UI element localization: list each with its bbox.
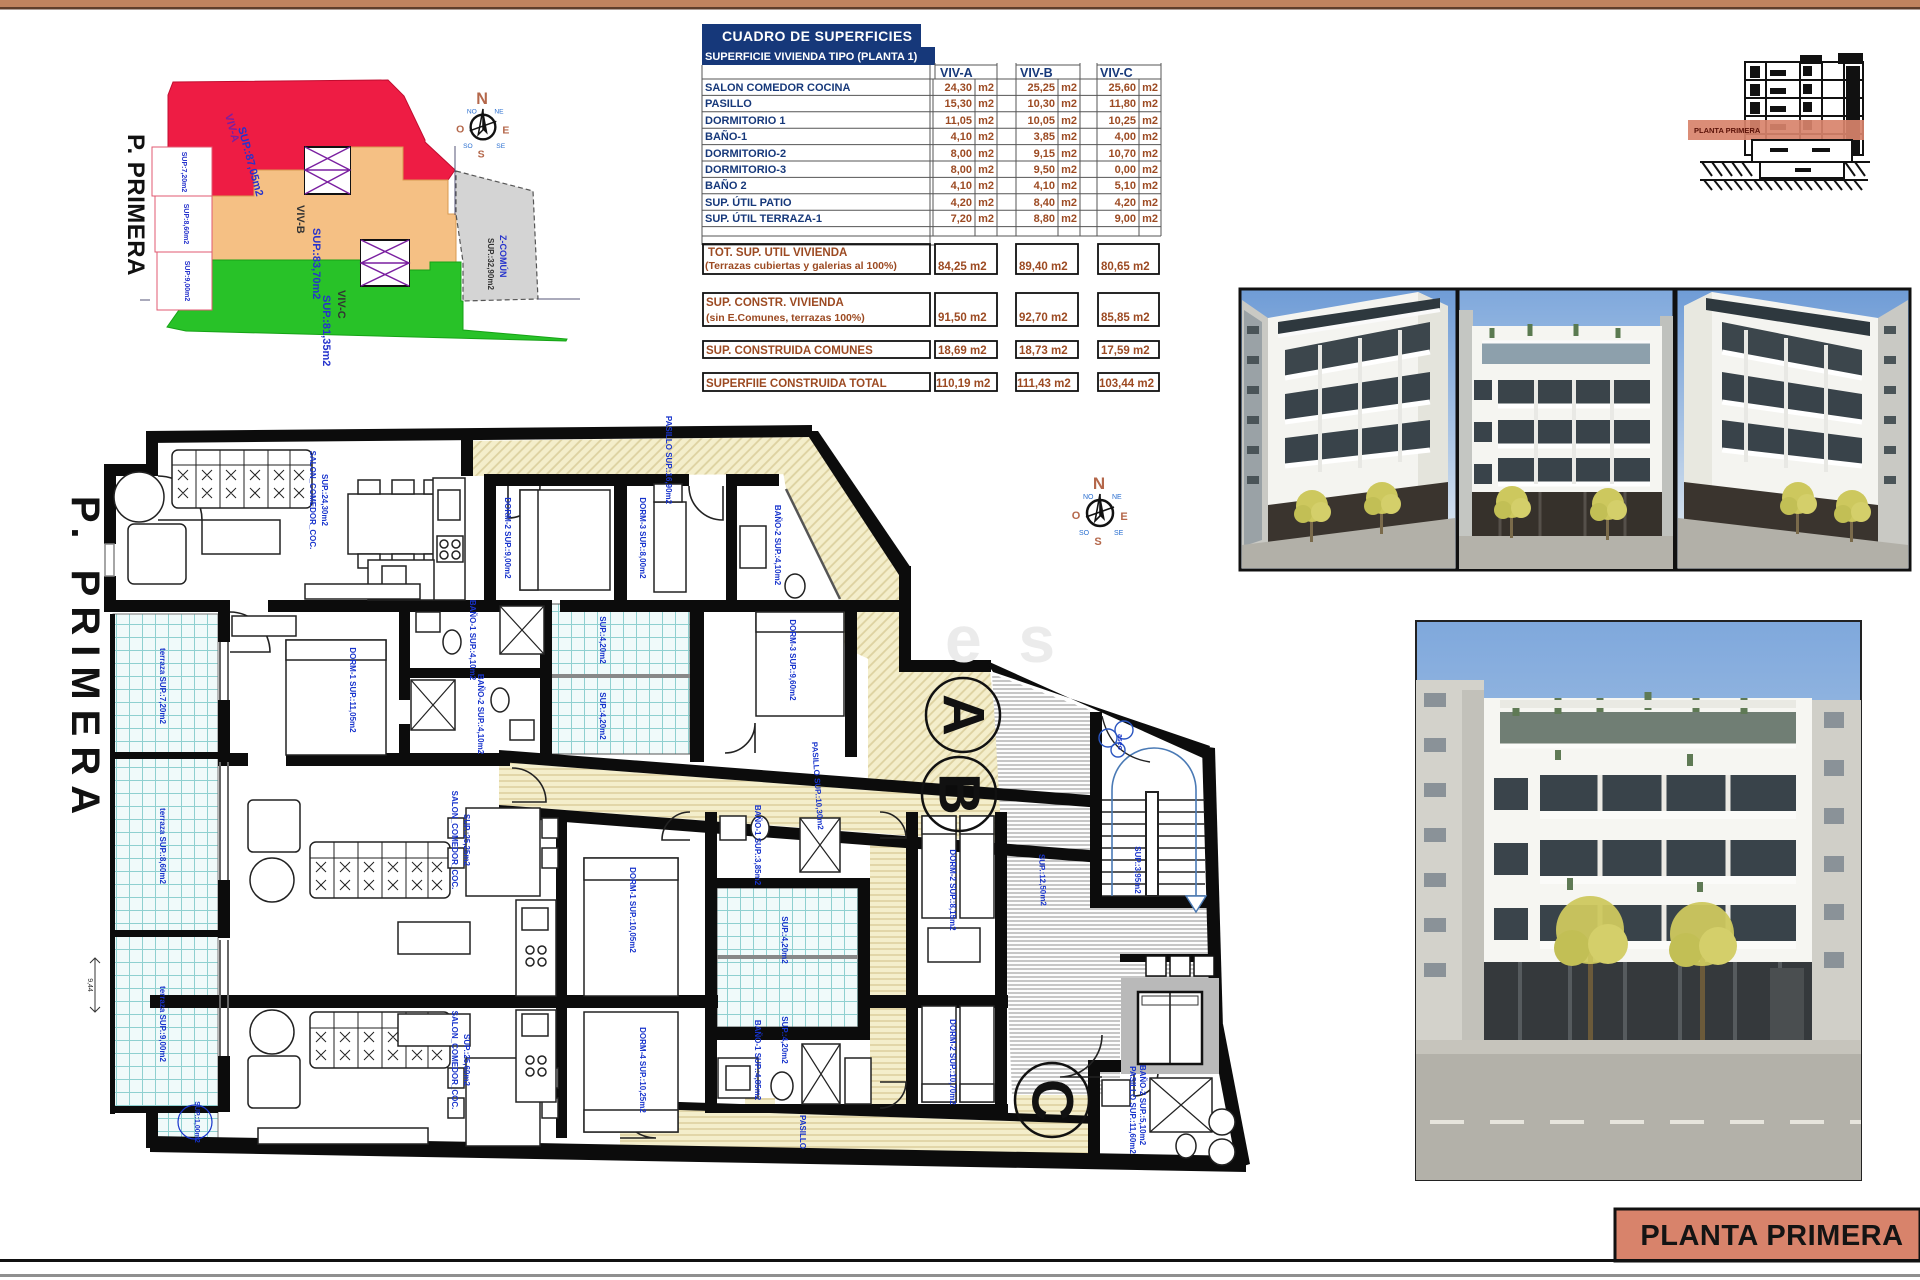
svg-text:4,20: 4,20: [951, 197, 972, 209]
svg-text:DORM-2 SUP.:8,15m2: DORM-2 SUP.:8,15m2: [948, 849, 957, 931]
svg-text:m2: m2: [1061, 213, 1077, 225]
svg-text:25,25: 25,25: [1027, 82, 1055, 94]
svg-text:m2: m2: [978, 148, 994, 160]
svg-text:CUADRO DE SUPERFICIES: CUADRO DE SUPERFICIES: [722, 28, 912, 44]
svg-text:A: A: [931, 694, 996, 736]
svg-text:PASILLO SUP.:11,60m2: PASILLO SUP.:11,60m2: [1128, 1066, 1137, 1154]
svg-text:DORM-2 SUP.:9,00m2: DORM-2 SUP.:9,00m2: [503, 497, 512, 579]
svg-text:7,20: 7,20: [951, 213, 972, 225]
svg-text:92,70 m2: 92,70 m2: [1019, 312, 1068, 324]
svg-text:m2: m2: [1061, 131, 1077, 143]
svg-text:SUP:8,60m2: SUP:8,60m2: [182, 204, 189, 245]
svg-text:BAÑO-1 SUP.:4,10m2: BAÑO-1 SUP.:4,10m2: [468, 600, 477, 681]
svg-text:SUP.:1,00m2: SUP.:1,00m2: [193, 1101, 200, 1143]
svg-text:4,10: 4,10: [951, 131, 972, 143]
svg-text:terraza SUP.:9,00m2: terraza SUP.:9,00m2: [158, 986, 167, 1062]
svg-text:SUP.:3,95m2: SUP.:3,95m2: [1133, 846, 1142, 894]
svg-text:m2: m2: [978, 213, 994, 225]
svg-text:P. PRIMERA: P. PRIMERA: [63, 496, 107, 824]
svg-text:PASILLO SUP.:16,90m2: PASILLO SUP.:16,90m2: [664, 416, 673, 505]
svg-text:8,00: 8,00: [951, 148, 972, 160]
svg-text:SUP.:4,20m2: SUP.:4,20m2: [780, 916, 789, 964]
svg-text:m2: m2: [1061, 148, 1077, 160]
svg-text:9,00: 9,00: [1115, 213, 1136, 225]
svg-text:SUP.:4,20m2: SUP.:4,20m2: [780, 1016, 789, 1064]
svg-text:8,80: 8,80: [1034, 213, 1055, 225]
svg-text:SUP.:4,20m2: SUP.:4,20m2: [598, 692, 607, 740]
svg-text:SUP:9,00m2: SUP:9,00m2: [183, 261, 190, 302]
svg-text:17,59 m2: 17,59 m2: [1101, 345, 1150, 357]
svg-text:8,00: 8,00: [951, 164, 972, 176]
svg-text:terraza SUP.:8,60m2: terraza SUP.:8,60m2: [158, 808, 167, 884]
svg-text:m2: m2: [978, 131, 994, 143]
svg-text:TOT. SUP. UTIL VIVIENDA: TOT. SUP. UTIL VIVIENDA: [708, 247, 847, 259]
svg-text:SUP:7,20m2: SUP:7,20m2: [180, 152, 187, 193]
svg-text:10,70: 10,70: [1108, 148, 1136, 160]
svg-text:DORM-4 SUP.:10,25m2: DORM-4 SUP.:10,25m2: [638, 1027, 647, 1113]
svg-text:SALON COMEDOR COCINA: SALON COMEDOR COCINA: [705, 82, 851, 94]
svg-text:PASILLO: PASILLO: [798, 1115, 807, 1149]
svg-text:DORMITORIO-2: DORMITORIO-2: [705, 148, 786, 160]
svg-text:10,30: 10,30: [1027, 98, 1055, 110]
svg-text:18,69 m2: 18,69 m2: [938, 345, 987, 357]
svg-text:5,10: 5,10: [1115, 180, 1136, 192]
svg-text:SUP.:4,20m2: SUP.:4,20m2: [598, 616, 607, 664]
svg-text:(Terrazas cubiertas y galerias: (Terrazas cubiertas y galerias al 100%): [705, 260, 897, 272]
svg-text:m2: m2: [1142, 98, 1158, 110]
svg-text:15,30: 15,30: [944, 98, 972, 110]
svg-text:9,44: 9,44: [86, 978, 93, 992]
svg-text:9,15: 9,15: [1034, 148, 1055, 160]
svg-text:SUP. CONSTRUIDA COMUNES: SUP. CONSTRUIDA COMUNES: [706, 345, 873, 357]
svg-text:e s: e s: [945, 602, 1055, 676]
svg-text:BAÑO-2 SUP.:5,10m2: BAÑO-2 SUP.:5,10m2: [1138, 1065, 1147, 1146]
svg-text:m2: m2: [1061, 197, 1077, 209]
svg-text:DORM-3 SUP.:8,00m2: DORM-3 SUP.:8,00m2: [638, 497, 647, 579]
svg-text:VIV-B: VIV-B: [1020, 66, 1053, 80]
svg-text:SUP.:81,35m2: SUP.:81,35m2: [320, 295, 332, 366]
svg-text:8,40: 8,40: [1034, 197, 1055, 209]
svg-text:Z-COMÚN: Z-COMÚN: [498, 235, 509, 278]
svg-text:9,50: 9,50: [1034, 164, 1055, 176]
svg-text:SALON_COMEDOR_COC.: SALON_COMEDOR_COC.: [308, 451, 317, 550]
svg-text:DORMITORIO 1: DORMITORIO 1: [705, 115, 785, 127]
svg-text:aseo: aseo: [1116, 734, 1123, 750]
svg-text:P. PRIMERA: P. PRIMERA: [122, 134, 149, 276]
svg-text:m2: m2: [1142, 82, 1158, 94]
svg-text:89,40 m2: 89,40 m2: [1019, 261, 1068, 273]
svg-text:SUP.:24,30m2: SUP.:24,30m2: [320, 474, 329, 526]
svg-text:VIV-B: VIV-B: [294, 205, 306, 234]
svg-text:SUP. CONSTR. VIVIENDA: SUP. CONSTR. VIVIENDA: [706, 297, 844, 309]
svg-text:m2: m2: [978, 82, 994, 94]
svg-text:SUP.:12,50m2: SUP.:12,50m2: [1037, 854, 1048, 907]
svg-text:24,30: 24,30: [944, 82, 972, 94]
svg-text:m2: m2: [1142, 131, 1158, 143]
svg-text:VIV-C: VIV-C: [335, 290, 347, 319]
svg-text:4,20: 4,20: [1115, 197, 1136, 209]
svg-text:m2: m2: [1142, 115, 1158, 127]
svg-text:PLANTA PRIMERA: PLANTA PRIMERA: [1694, 126, 1761, 135]
svg-text:BAÑO-2 SUP.:4,10m2: BAÑO-2 SUP.:4,10m2: [773, 505, 782, 586]
svg-text:SUP. ÚTIL TERRAZA-1: SUP. ÚTIL TERRAZA-1: [705, 212, 822, 225]
svg-text:SALON_COMEDOR_COC.: SALON_COMEDOR_COC.: [450, 791, 459, 890]
svg-text:103,44 m2: 103,44 m2: [1099, 378, 1154, 390]
svg-text:DORM-1 SUP.:11,05m2: DORM-1 SUP.:11,05m2: [348, 647, 357, 733]
svg-text:(sin E.Comunes, terrazas 100%): (sin E.Comunes, terrazas 100%): [706, 312, 865, 324]
svg-text:m2: m2: [1061, 164, 1077, 176]
svg-text:PASILLO: PASILLO: [705, 98, 752, 110]
svg-text:m2: m2: [978, 98, 994, 110]
svg-text:BAÑO-2 SUP.:4,10m2: BAÑO-2 SUP.:4,10m2: [476, 674, 485, 755]
svg-text:SUP. ÚTIL PATIO: SUP. ÚTIL PATIO: [705, 196, 792, 209]
svg-text:25,60: 25,60: [1108, 82, 1136, 94]
svg-text:m2: m2: [1142, 180, 1158, 192]
svg-text:m2: m2: [978, 115, 994, 127]
svg-text:C: C: [1020, 1079, 1085, 1121]
svg-text:DORM-1 SUP.:10,05m2: DORM-1 SUP.:10,05m2: [628, 867, 637, 953]
svg-text:DORM-2 SUP.:10,70m2: DORM-2 SUP.:10,70m2: [948, 1019, 957, 1105]
svg-text:VIV-A: VIV-A: [940, 66, 973, 80]
svg-text:4,10: 4,10: [951, 180, 972, 192]
svg-text:B: B: [927, 773, 992, 815]
svg-text:SUPERFIIE CONSTRUIDA TOTAL: SUPERFIIE CONSTRUIDA TOTAL: [706, 378, 887, 390]
svg-text:91,50 m2: 91,50 m2: [938, 312, 987, 324]
svg-text:VIV-C: VIV-C: [1100, 66, 1133, 80]
svg-text:DORM-3 SUP.:9,60m2: DORM-3 SUP.:9,60m2: [788, 619, 797, 701]
svg-text:SUP.:25,60m2: SUP.:25,60m2: [462, 1034, 471, 1086]
svg-text:0,00: 0,00: [1115, 164, 1136, 176]
svg-text:terraza SUP.:7,20m2: terraza SUP.:7,20m2: [158, 648, 167, 724]
svg-text:m2: m2: [1142, 197, 1158, 209]
svg-text:11,05: 11,05: [945, 115, 972, 127]
svg-text:SUP.:83,70m2: SUP.:83,70m2: [310, 228, 322, 299]
svg-text:3,85: 3,85: [1034, 131, 1055, 143]
svg-text:m2: m2: [1061, 115, 1077, 127]
svg-text:m2: m2: [978, 180, 994, 192]
svg-text:BAÑO 2: BAÑO 2: [705, 179, 747, 192]
svg-text:m2: m2: [1061, 82, 1077, 94]
svg-text:SUP.:25,25m2: SUP.:25,25m2: [462, 814, 471, 866]
svg-text:PLANTA PRIMERA: PLANTA PRIMERA: [1640, 1220, 1903, 1252]
svg-text:BAÑO-1 SUP.:4,85m2: BAÑO-1 SUP.:4,85m2: [753, 1020, 762, 1101]
svg-text:SALON_COMEDOR_COC.: SALON_COMEDOR_COC.: [450, 1011, 459, 1110]
svg-text:110,19 m2: 110,19 m2: [936, 378, 990, 390]
svg-text:4,00: 4,00: [1115, 131, 1136, 143]
svg-text:m2: m2: [1142, 164, 1158, 176]
svg-text:111,43 m2: 111,43 m2: [1017, 378, 1071, 390]
svg-text:18,73 m2: 18,73 m2: [1019, 345, 1068, 357]
svg-text:85,85 m2: 85,85 m2: [1101, 312, 1150, 324]
svg-text:DORMITORIO-3: DORMITORIO-3: [705, 164, 786, 176]
svg-text:m2: m2: [1142, 213, 1158, 225]
svg-text:m2: m2: [1142, 148, 1158, 160]
svg-text:BAÑO-1 SUP.:3,85m2: BAÑO-1 SUP.:3,85m2: [753, 805, 762, 886]
svg-text:10,05: 10,05: [1027, 115, 1055, 127]
svg-text:SUPERFICIE VIVIENDA TIPO (PLA: SUPERFICIE VIVIENDA TIPO (PLANTA 1): [705, 51, 918, 63]
svg-text:m2: m2: [978, 197, 994, 209]
svg-text:BAÑO-1: BAÑO-1: [705, 130, 747, 143]
svg-text:10,25: 10,25: [1108, 115, 1136, 127]
svg-text:m2: m2: [978, 164, 994, 176]
svg-text:80,65 m2: 80,65 m2: [1101, 261, 1150, 273]
svg-text:m2: m2: [1061, 98, 1077, 110]
svg-text:m2: m2: [1061, 180, 1077, 192]
svg-text:SUP.:32,90m2: SUP.:32,90m2: [486, 238, 495, 290]
svg-text:11,80: 11,80: [1109, 98, 1136, 110]
svg-text:4,10: 4,10: [1034, 180, 1055, 192]
svg-text:84,25 m2: 84,25 m2: [938, 261, 987, 273]
